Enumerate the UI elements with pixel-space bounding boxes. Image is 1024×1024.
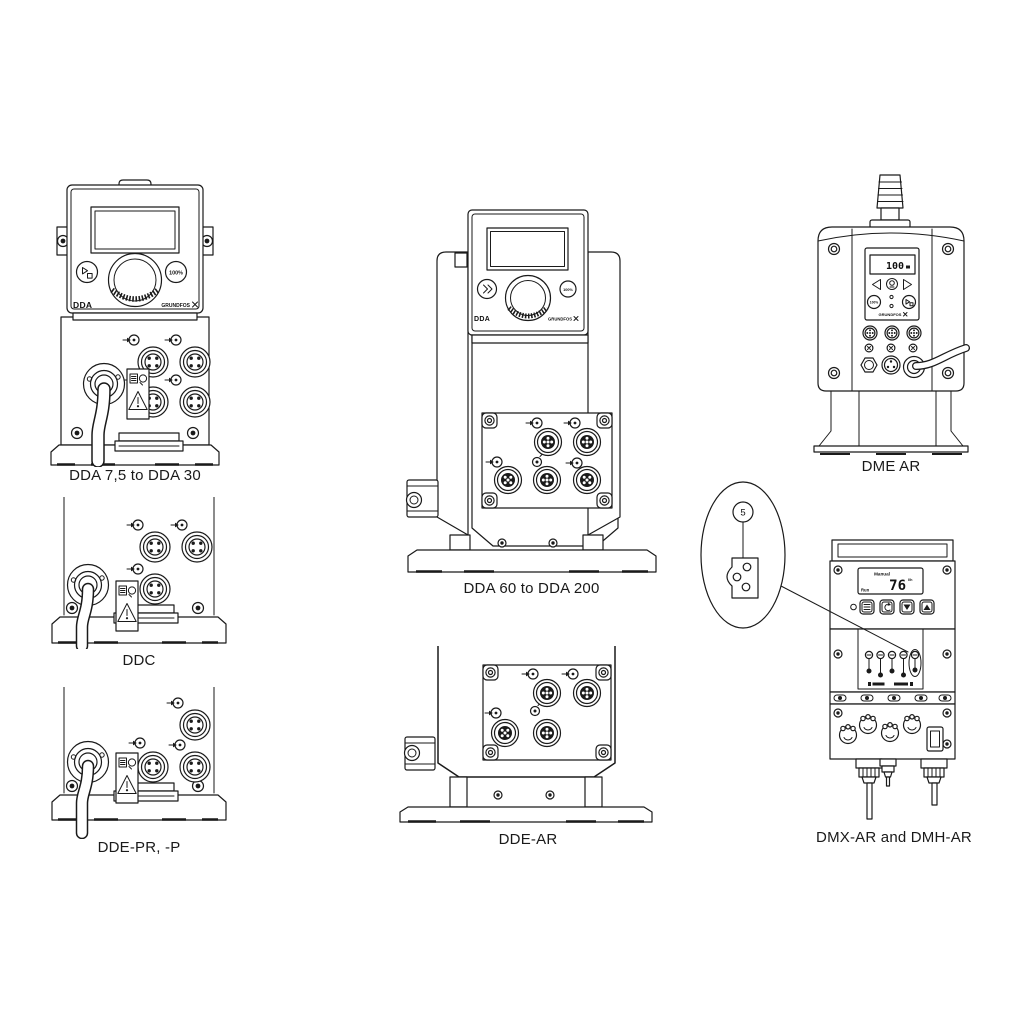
m12-socket <box>574 680 601 707</box>
m12-socket <box>534 467 561 494</box>
corner-screw <box>67 781 78 792</box>
display-value: 100 <box>886 261 904 272</box>
caption-dmx-dmh: DMX-AR and DMH-AR <box>816 829 972 846</box>
display <box>91 207 179 253</box>
m12-socket <box>574 429 601 456</box>
corner-screw <box>943 740 951 748</box>
socket-label-icon <box>887 344 895 352</box>
panel-screw <box>599 748 608 757</box>
cable-gland-middle <box>880 759 896 786</box>
mini-socket <box>885 326 899 340</box>
svg-text:GRUNDFOS: GRUNDFOS <box>548 317 572 322</box>
display <box>487 228 568 270</box>
dme-ar-drawing: 100 100% GRUNDFOS <box>806 169 976 455</box>
round-connector <box>882 356 900 374</box>
panel-lip <box>472 335 588 343</box>
m12-socket <box>180 752 210 782</box>
side-valve-bracket <box>407 480 439 517</box>
figure-dme-ar: 100 100% GRUNDFOS <box>806 169 976 475</box>
figure-ddc: DDC <box>50 497 228 669</box>
start-stop-button <box>903 296 916 309</box>
m12-socket <box>534 720 561 747</box>
gland-cap <box>840 725 857 744</box>
control-panel: 100% DDA GRUNDFOS <box>468 210 588 335</box>
m12-socket <box>534 680 561 707</box>
panel-screw <box>486 668 495 677</box>
svg-text:GRUNDFOS: GRUNDFOS <box>879 312 902 317</box>
signal-sockets <box>863 326 921 352</box>
cable <box>887 777 890 786</box>
hundred-percent-label: 100% <box>169 271 183 277</box>
control-panel: 100% DDA GRUNDFOS <box>67 185 203 313</box>
corner-screw-hole <box>829 368 840 379</box>
m12-socket <box>492 720 519 747</box>
cable-gland-right <box>921 759 947 805</box>
cable <box>867 783 872 819</box>
base-screw <box>494 791 502 799</box>
m12-socket <box>574 467 601 494</box>
dda-7-5-to-30-drawing: 100% DDA GRUNDFOS <box>49 177 221 467</box>
warning-label <box>116 581 138 631</box>
side-valve-bracket <box>405 737 436 770</box>
model-label: DDA <box>73 300 92 310</box>
hundred-percent-button: 100% <box>166 262 187 283</box>
m12-socket <box>182 532 212 562</box>
mini-socket <box>863 326 877 340</box>
figure-dda-60-to-200: 100% DDA GRUNDFOS <box>404 199 659 597</box>
foot <box>585 777 602 807</box>
dde-pr-p-drawing <box>50 687 228 839</box>
gland-cap <box>904 715 921 734</box>
caption-dda-small: DDA 7,5 to DDA 30 <box>69 467 201 484</box>
corner-screw-hole <box>829 244 840 255</box>
hundred-percent-button: 100% <box>868 296 881 309</box>
svg-text:GRUNDFOS: GRUNDFOS <box>161 303 190 309</box>
socket-label-icon <box>865 344 873 352</box>
corner-screw-hole <box>943 368 954 379</box>
panel-lip <box>73 313 197 320</box>
mounting-base <box>408 550 656 572</box>
panel-screw <box>485 416 494 425</box>
gland-section <box>830 704 955 759</box>
m12-socket <box>140 574 170 604</box>
panel-screw <box>486 748 495 757</box>
corner-screw <box>193 603 204 614</box>
base-screw <box>549 539 557 547</box>
mains-cable <box>82 766 88 833</box>
mains-cable <box>98 389 104 461</box>
callout-detail-5: 5 <box>693 470 993 665</box>
m12-socket <box>180 387 210 417</box>
callout-number: 5 <box>740 508 745 519</box>
model-label: DDA <box>474 316 490 323</box>
m12-socket <box>140 532 170 562</box>
caption-dde-ar: DDE-AR <box>499 831 558 848</box>
cable <box>932 783 937 805</box>
pedestal <box>814 391 968 454</box>
connection-panel <box>483 665 611 760</box>
m12-socket <box>180 710 210 740</box>
corner-screw-hole <box>943 244 954 255</box>
corner-screw <box>67 603 78 614</box>
caption-dda-large: DDA 60 to DDA 200 <box>464 580 600 597</box>
m12-socket <box>495 467 522 494</box>
gland-cap <box>882 723 899 742</box>
panel-screw <box>485 496 494 505</box>
corner-screw <box>188 428 199 439</box>
figure-dde-ar: DDE-AR <box>398 646 658 848</box>
base-screw <box>546 791 554 799</box>
figure-dde-pr-p: DDE-PR, -P <box>50 687 228 856</box>
din-rail-clip <box>119 433 179 441</box>
foot <box>583 535 603 550</box>
adjustment-dial <box>506 276 551 321</box>
vent-cap <box>870 175 910 228</box>
diagram-page: 100% DDA GRUNDFOS DDA 7,5 to DDA 30 <box>0 0 1024 1024</box>
panel-screw <box>599 668 608 677</box>
connection-panel <box>482 413 612 508</box>
warning-label <box>116 753 138 803</box>
socket-label-icon <box>909 344 917 352</box>
figure-dda-7-5-to-30: 100% DDA GRUNDFOS DDA 7,5 to DDA 30 <box>49 177 221 484</box>
corner-screw <box>943 709 951 717</box>
control-panel: 100 100% GRUNDFOS <box>865 248 919 320</box>
hex-gland <box>861 358 877 372</box>
mounting-base <box>400 807 652 822</box>
hundred-percent-label: 100% <box>563 288 573 292</box>
left-shoulder <box>437 252 468 535</box>
hundred-percent-button: 100% <box>560 281 576 297</box>
gland-cap <box>860 715 877 734</box>
panel-screw <box>600 496 609 505</box>
cable-gland-left <box>856 759 882 819</box>
corner-screw <box>72 428 83 439</box>
m12-socket <box>535 429 562 456</box>
base-screw <box>498 539 506 547</box>
warning-label <box>127 369 149 419</box>
mains-cable <box>82 589 88 646</box>
m12-socket <box>180 347 210 377</box>
caption-ddc: DDC <box>122 652 155 669</box>
dda-60-to-200-drawing: 100% DDA GRUNDFOS <box>404 199 659 577</box>
dde-ar-drawing <box>398 646 658 829</box>
side-clip <box>455 253 467 267</box>
m12-socket <box>138 752 168 782</box>
foot <box>450 535 470 550</box>
start-stop-button <box>77 262 98 283</box>
terminal-part-detail <box>727 558 758 598</box>
mini-socket <box>907 326 921 340</box>
ddc-drawing <box>50 497 228 649</box>
start-stop-button <box>478 280 497 299</box>
hundred-percent-label: 100% <box>870 301 879 305</box>
callout-leader-line <box>781 586 908 652</box>
corner-screw <box>834 709 842 717</box>
adjustment-dial <box>109 254 162 307</box>
vent-slot-row <box>830 692 955 704</box>
foot <box>450 777 467 807</box>
caption-dde-pr-p: DDE-PR, -P <box>98 839 181 856</box>
panel-screw <box>600 416 609 425</box>
